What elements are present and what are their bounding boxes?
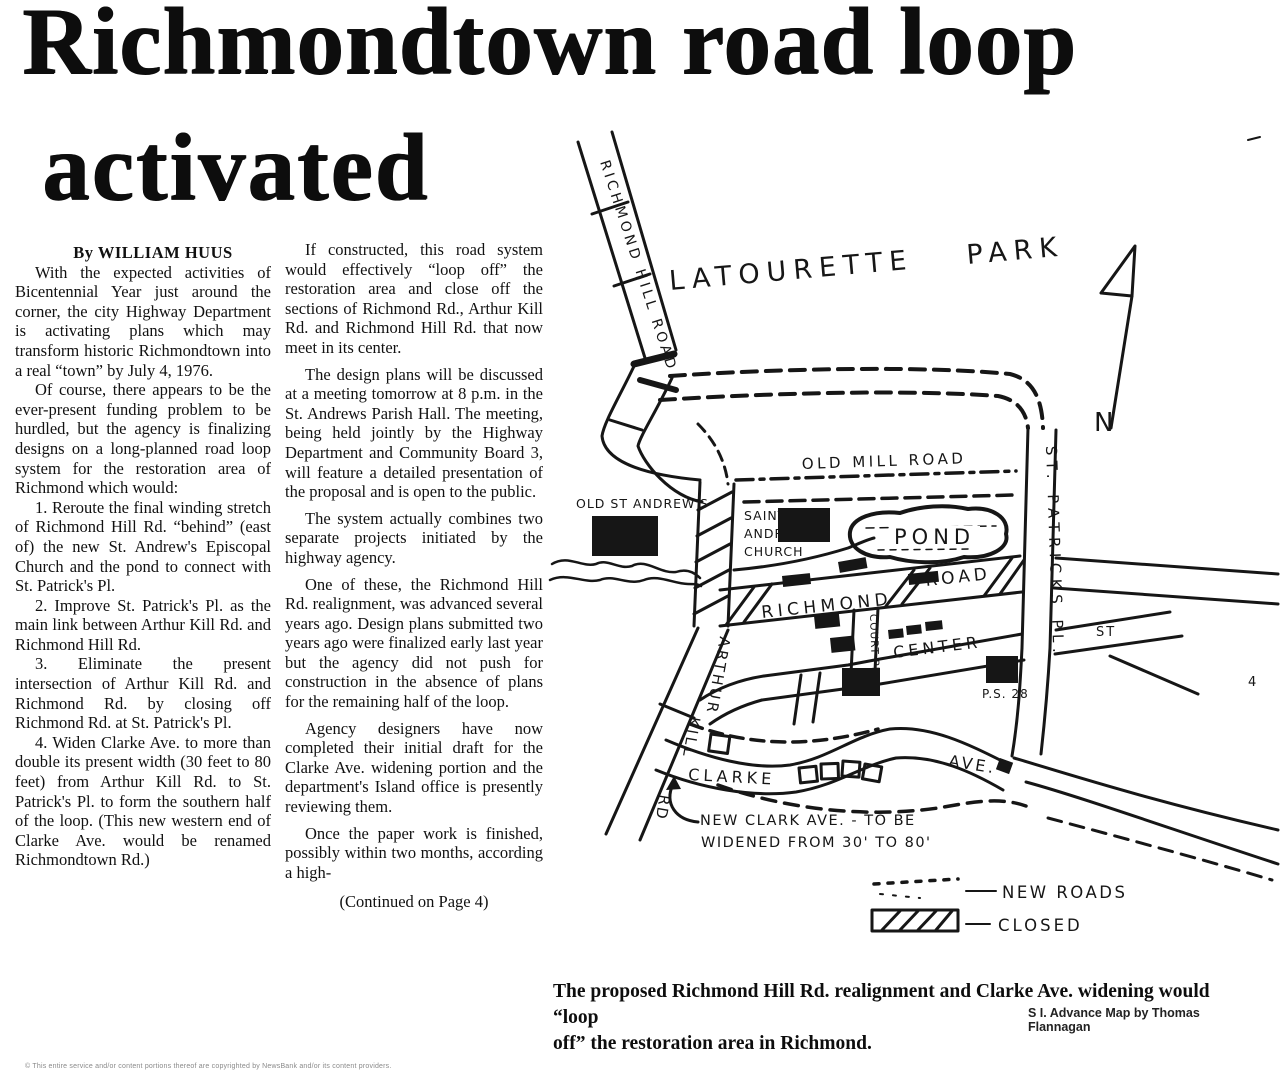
copyright-notice: © This entire service and/or content por… — [25, 1063, 392, 1070]
paragraph: 2. Improve St. Patrick's Pl. as the main… — [15, 596, 271, 655]
headline-line1: Richmondtown road loop — [22, 0, 1077, 96]
svg-text:N: N — [1094, 408, 1113, 438]
svg-text:ARTHUR: ARTHUR — [702, 635, 734, 716]
road-court-pl: COURT PL. — [851, 608, 881, 678]
legend-closed: CLOSED — [998, 916, 1083, 935]
map-credit: S I. Advance Map by Thomas Flannagan — [1028, 1006, 1258, 1034]
paragraph: Once the paper work is finished, possibl… — [285, 824, 543, 883]
road-richmond-hill: RICHMOND HILL ROAD — [578, 132, 702, 502]
paragraph: The system actually combines two separat… — [285, 509, 543, 568]
saint-andrew-church-building — [778, 508, 830, 542]
stray-mark: 4 — [1248, 675, 1256, 690]
paragraph: One of these, the Richmond Hill Rd. real… — [285, 575, 543, 712]
paragraph: 1. Reroute the final winding stretch of … — [15, 498, 271, 596]
road-southeast — [996, 758, 1278, 880]
article-column-2: If constructed, this road system would e… — [285, 240, 543, 919]
old-st-andrews-label: OLD ST ANDREW'S — [576, 496, 709, 511]
park-label: LATOURETTE PARK — [668, 232, 1065, 297]
caption-line2: off” the restoration area in Richmond. — [553, 1031, 1253, 1057]
continued-notice: (Continued on Page 4) — [285, 892, 543, 912]
hand-drawn-map: LATOURETTE PARK N RICHMOND HILL ROAD — [548, 128, 1280, 964]
legend-new-roads: NEW ROADS — [1002, 883, 1127, 902]
svg-text:CENTER: CENTER — [892, 632, 982, 662]
paragraph: Agency designers have now completed thei… — [285, 719, 543, 817]
ps28-label: P.S. 28 — [982, 687, 1029, 701]
svg-text:POND: POND — [894, 525, 975, 549]
svg-text:ST. PATRICKS PL.: ST. PATRICKS PL. — [1042, 446, 1067, 659]
svg-text:ST: ST — [1096, 625, 1116, 640]
newspaper-page: Richmondtown road loop activated By WILL… — [0, 0, 1280, 1076]
pond: POND — [850, 506, 1007, 562]
compass-north-icon: N — [1094, 246, 1135, 438]
svg-text:CHURCH: CHURCH — [744, 544, 803, 559]
stray-dash — [1248, 137, 1260, 140]
svg-text:ROAD: ROAD — [924, 564, 991, 591]
paragraph: If constructed, this road system would e… — [285, 240, 543, 358]
stream — [550, 560, 701, 586]
paragraph: The design plans will be discussed at a … — [285, 365, 543, 502]
road-clarke: CLARKE AVE. — [656, 724, 1026, 812]
svg-text:WIDENED FROM 30' TO 80': WIDENED FROM 30' TO 80' — [701, 835, 932, 851]
paragraph: 3. Eliminate the present intersection of… — [15, 654, 271, 732]
headline-line2: activated — [42, 112, 429, 222]
map-legend: NEW ROADS CLOSED — [872, 879, 1127, 935]
svg-text:NEW CLARK AVE. - TO BE: NEW CLARK AVE. - TO BE — [700, 813, 916, 829]
road-richmond-east — [1054, 558, 1278, 604]
old-st-andrews-building — [592, 516, 658, 556]
paragraph: Of course, there appears to be the ever-… — [15, 380, 271, 498]
article-column-1: By WILLIAM HUUS With the expected activi… — [15, 243, 271, 870]
road-st: ST — [1055, 612, 1198, 694]
svg-text:OLD MILL ROAD: OLD MILL ROAD — [802, 449, 967, 473]
ps28-building — [986, 656, 1018, 683]
paragraph: With the expected activities of Bicenten… — [15, 263, 271, 381]
paragraph: 4. Widen Clarke Ave. to more than double… — [15, 733, 271, 870]
byline: By WILLIAM HUUS — [15, 243, 271, 263]
road-old-mill: OLD MILL ROAD — [736, 449, 1016, 502]
